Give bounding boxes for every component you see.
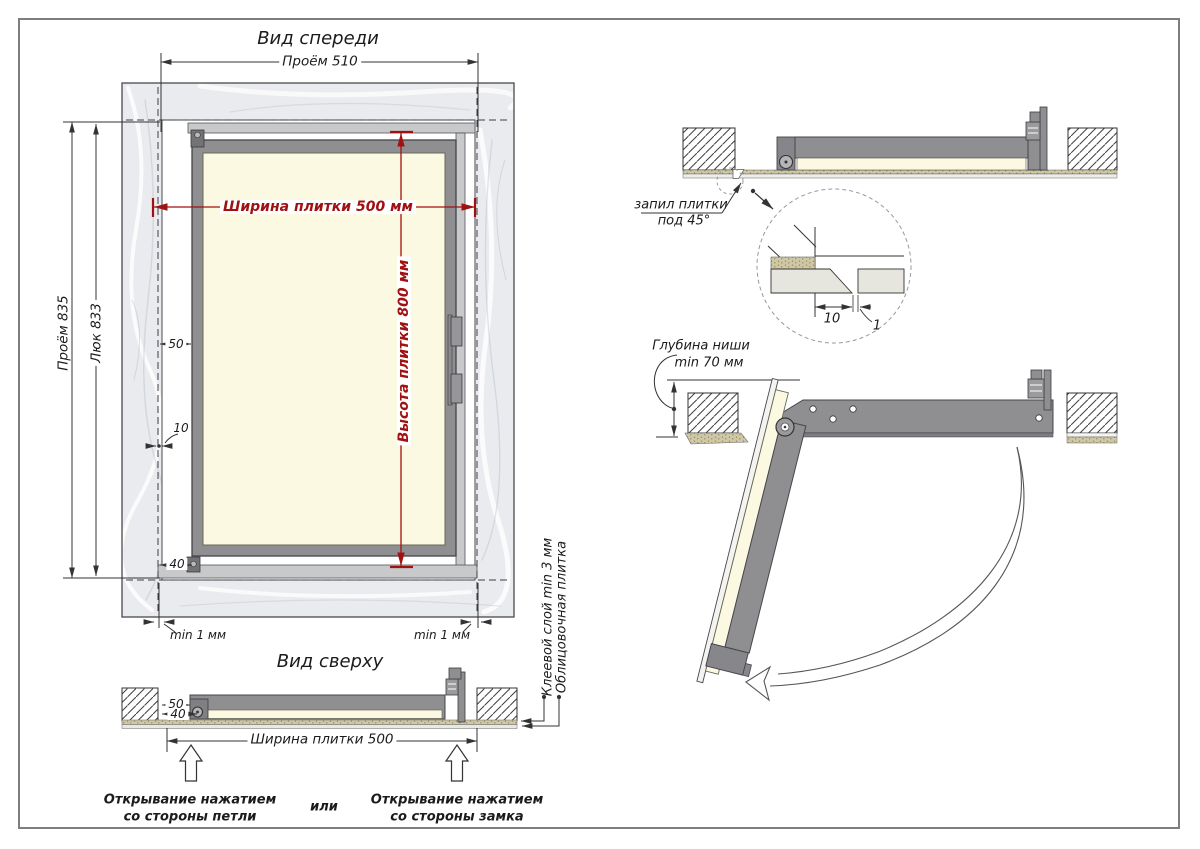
press-lock-label-2: со стороны замка — [390, 811, 523, 824]
layer-leaders — [521, 695, 561, 726]
gap-min1-right: min 1 мм — [414, 629, 470, 641]
dim-tile-width: Ширина плитки 500 мм — [220, 200, 416, 214]
hatch-frame-lip — [794, 433, 1053, 437]
ceiling-block-left-open — [688, 393, 738, 433]
hatch-tile-closed — [797, 158, 1026, 170]
dim-opening-height: Проём 835 — [57, 292, 71, 374]
press-hinge-label-1: Открывание нажатием — [104, 794, 276, 807]
hatch-frame-bottom-strip — [158, 565, 477, 578]
detail-contents — [768, 225, 904, 322]
hatch-frame-open — [777, 400, 1053, 433]
hatch-body-closed — [795, 137, 1028, 158]
dim-tile-height: Высота плитки 800 мм — [397, 257, 411, 446]
hinge-pin-center — [196, 711, 199, 714]
tile-cut-label-2: под 45° — [658, 215, 711, 228]
press-lock-label-1: Открывание нажатием — [371, 794, 543, 807]
depth-leader-dot — [672, 407, 676, 411]
detail-leader-arrow — [755, 193, 773, 209]
top-view-title: Вид сверху — [277, 653, 384, 671]
hinge-top — [191, 130, 204, 147]
top-view — [122, 668, 561, 781]
niche-depth-label-2: min 70 мм — [675, 357, 744, 370]
tile-cut-label-1: запил плитки — [634, 199, 727, 212]
or-label: или — [310, 801, 338, 814]
niche-depth-label-1: Глубина ниши — [652, 340, 750, 353]
tile-foot-right-light — [1067, 433, 1117, 437]
dim-tile-width-top: Ширина плитки 500 — [247, 733, 396, 747]
dim-opening-width: Проём 510 — [279, 55, 361, 69]
section-closed — [641, 107, 1117, 343]
detail-leader-dot — [751, 189, 755, 193]
wall-block-right — [477, 688, 517, 721]
hatch-tile-edge — [204, 710, 442, 719]
ceiling-block-right-open — [1067, 393, 1117, 433]
tile-foot-right — [1067, 437, 1117, 443]
section-open — [654, 355, 1117, 700]
dim-10-point — [157, 444, 161, 448]
drawing-page: Вид спереди Проём 510 Проём 835 Люк 833 … — [0, 0, 1200, 849]
press-arrow-hinge-side — [180, 745, 202, 781]
dim-40-front: 40 — [166, 558, 187, 570]
front-view — [63, 53, 516, 632]
hinge-pin-closed-center — [785, 161, 788, 164]
detail-dim-1: 1 — [873, 320, 881, 333]
adhesive-layer-closed — [683, 170, 1117, 174]
dim-10-front: 10 — [173, 422, 188, 434]
dim-50-front: 50 — [165, 338, 186, 350]
press-hinge-label-2: со стороны петли — [124, 811, 257, 824]
hatch-frame-right-strip — [456, 133, 465, 566]
door-hinge-open — [776, 418, 794, 436]
hatch-frame-top-strip — [188, 123, 475, 133]
front-view-title: Вид спереди — [257, 30, 379, 48]
wall-block-left — [122, 688, 158, 721]
tile-layer-closed — [683, 174, 1117, 178]
tile-foot-left — [685, 433, 748, 444]
detail-dim-10: 10 — [824, 313, 841, 326]
ceiling-block-right — [1068, 128, 1117, 170]
ceiling-block-left — [683, 128, 735, 170]
latch-top-view — [446, 668, 465, 722]
tile-layer — [122, 725, 517, 729]
press-arrow-lock-side — [446, 745, 468, 781]
dim-hatch-height: Люк 833 — [90, 300, 104, 366]
facing-tile-label: Облицовочная плитка — [556, 541, 569, 693]
gap-min1-left: min 1 мм — [170, 629, 226, 641]
adhesive-layer-label: Клеевой слой min 3 мм — [542, 538, 555, 696]
dim-40-top: 40 — [167, 708, 188, 720]
